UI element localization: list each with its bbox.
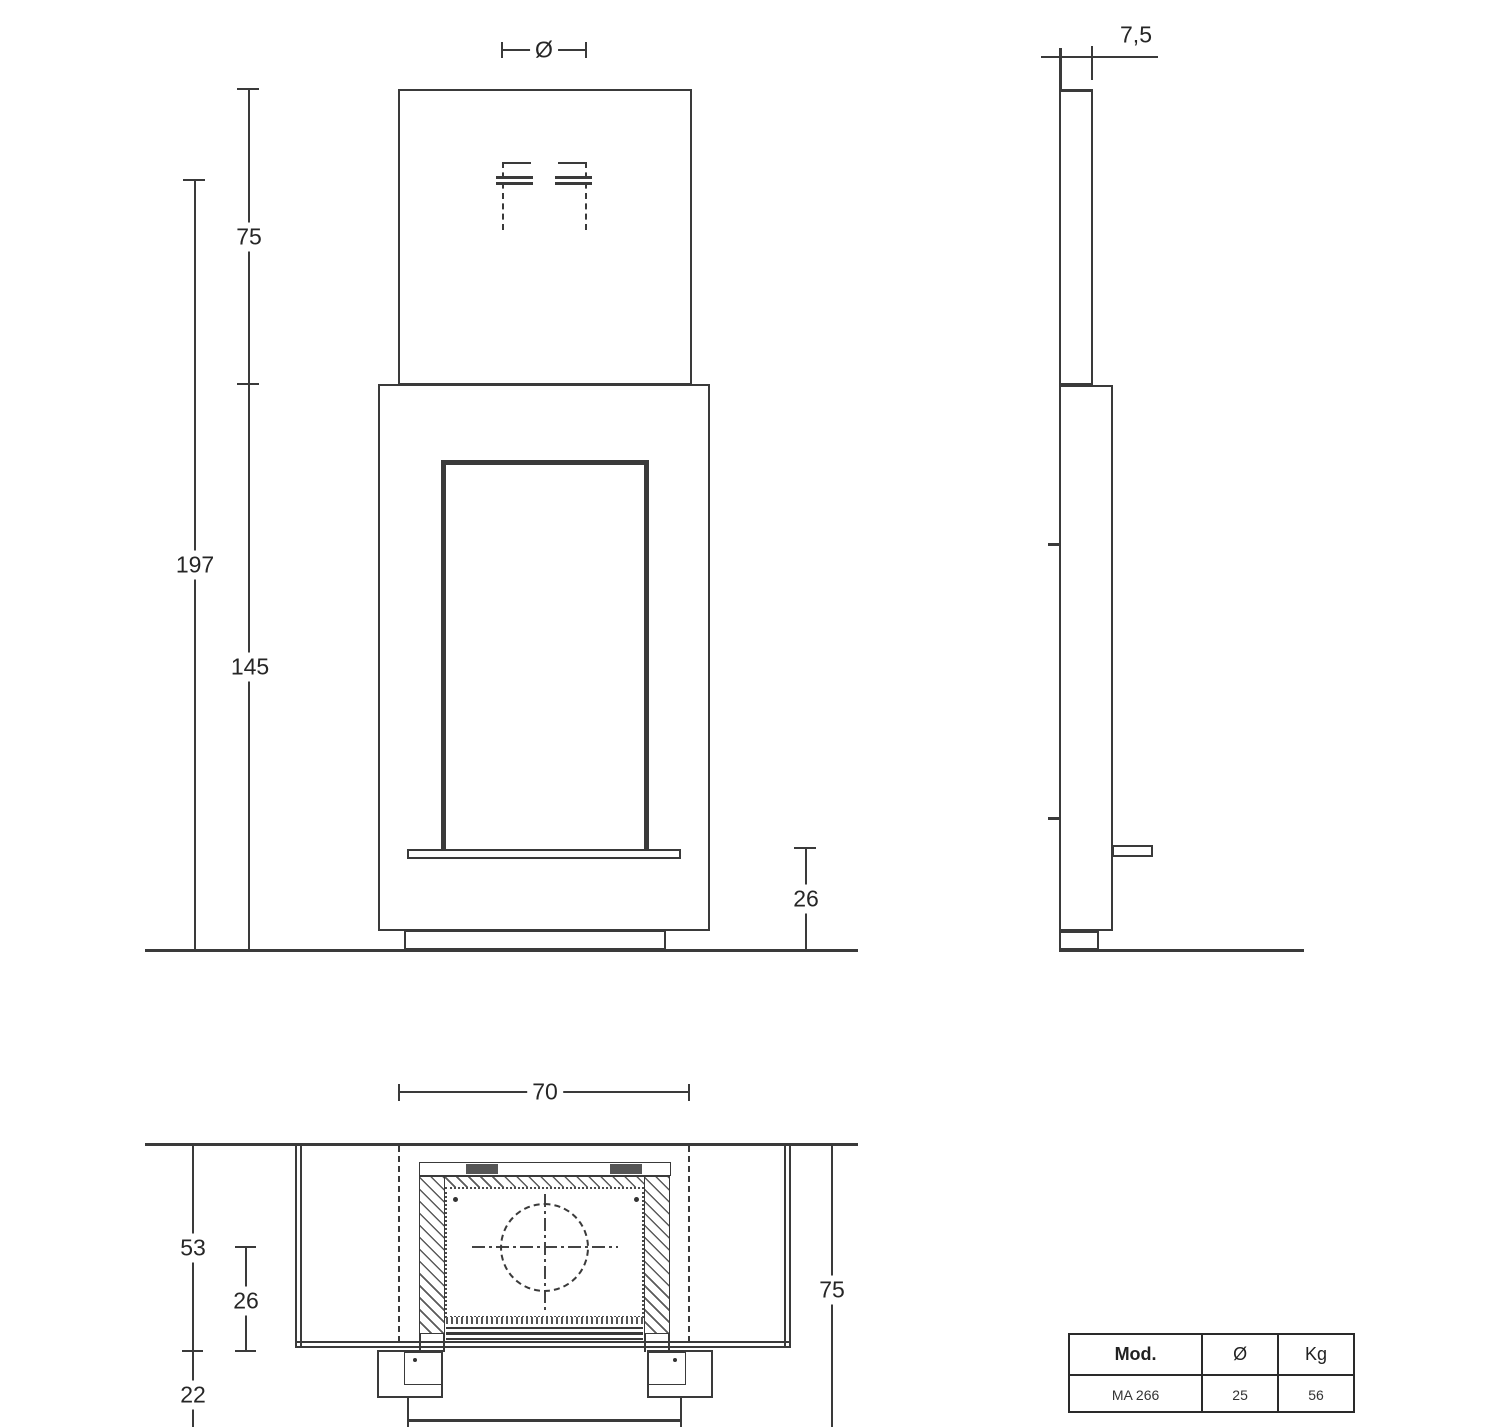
dim-145-label: 145 [226,653,274,682]
spec-value-weight: 56 [1279,1376,1353,1413]
plan-firebox-wall-right [644,1176,670,1334]
side-chimney-profile [1059,89,1093,385]
dim-75mm-ext-tick [1091,46,1093,80]
dim-53-label: 53 [175,1234,211,1263]
flue-collar-line-left-lower [496,182,533,185]
spec-table-data-row: MA 266 25 56 [1070,1376,1353,1413]
side-wall-notch-lower [1048,817,1060,820]
side-wall-notch-upper [1048,543,1060,546]
spec-header-diameter: Ø [1203,1335,1279,1376]
dim-26-plan-bottom-tick [235,1350,256,1352]
technical-drawing-canvas: Ø 197 75 145 26 7,5 [0,0,1500,1427]
front-hearth-shelf [407,849,681,859]
dim-75-plan-label: 75 [814,1276,850,1305]
flue-top-dash-left [503,162,531,164]
plan-dashed-extent-right [688,1146,690,1342]
plan-body-left-inner [300,1146,302,1346]
spec-value-diameter: 25 [1203,1376,1279,1413]
plan-glass-line-2 [446,1332,643,1335]
plan-leg-right-dot [673,1358,677,1362]
plan-dashed-extent-left [398,1146,400,1342]
dim-22-label: 22 [175,1381,211,1410]
spec-table: Mod. Ø Kg MA 266 25 56 [1068,1333,1355,1413]
flue-collar-line-right-lower [555,182,592,185]
plan-glass-line-1 [446,1327,643,1329]
plan-screw-dot-right [634,1197,639,1202]
plan-grate-strip [446,1317,643,1324]
plan-firebox-wall-left [419,1176,445,1334]
plan-body-right-outer [789,1146,791,1346]
flue-top-dash-right [558,162,586,164]
dim-53-bottom-tick [182,1350,203,1352]
spec-header-kg: Kg [1279,1335,1353,1376]
plan-firebox-clamp-left [466,1164,498,1174]
side-ground-line [1059,949,1304,952]
spec-value-model: MA 266 [1070,1376,1203,1413]
plan-screw-dot-left [453,1197,458,1202]
side-shelf-profile [1112,845,1153,857]
plan-body-bottom-inner [295,1346,791,1348]
dim-75mm-line [1041,56,1158,58]
front-chimney-outline [398,89,692,385]
dim-70-label: 70 [527,1078,563,1107]
plan-body-left-outer [295,1146,297,1346]
front-plinth [404,930,666,950]
plan-leg-right-inner [648,1352,686,1385]
plan-body-right-inner [784,1146,786,1346]
dim-diameter-label: Ø [530,36,558,65]
plan-bottom-front-line [409,1419,681,1422]
plan-leg-left-inner [404,1352,442,1385]
dim-75-label: 75 [231,223,267,252]
dim-197-label: 197 [171,551,219,580]
dim-26-plan-label: 26 [228,1287,264,1316]
plan-casing-ext-right-inner [644,1334,646,1352]
plan-glass-line-3 [446,1338,643,1340]
flue-hidden-line-left [502,162,504,230]
spec-table-header-row: Mod. Ø Kg [1070,1335,1353,1376]
spec-header-mod: Mod. [1070,1335,1203,1376]
plan-firebox-clamp-right [610,1164,642,1174]
plan-flue-circle [500,1203,589,1292]
plan-leg-left-centerline [407,1398,409,1427]
front-ground-line [145,949,858,952]
flue-hidden-line-right [585,162,587,230]
plan-body-bottom-outer [295,1341,791,1343]
plan-leg-left-dot [413,1358,417,1362]
front-firebox-opening [441,460,649,849]
side-plinth-profile [1059,931,1099,950]
plan-wall-line [145,1143,858,1146]
dim-26-front-label: 26 [788,885,824,914]
side-body-profile [1059,385,1113,931]
flue-collar-line-left-upper [496,176,533,179]
plan-leg-right-centerline [680,1398,682,1427]
flue-collar-line-right-upper [555,176,592,179]
plan-casing-ext-left-inner [443,1334,445,1352]
dim-75mm-label: 7,5 [1115,21,1157,50]
